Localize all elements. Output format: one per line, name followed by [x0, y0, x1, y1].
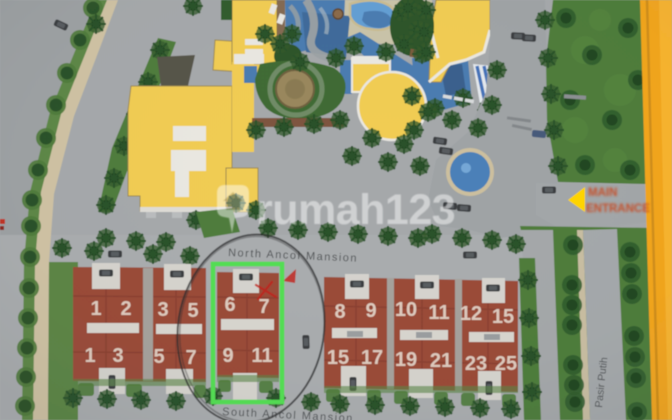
- svg-text:rumah123: rumah123: [256, 186, 455, 234]
